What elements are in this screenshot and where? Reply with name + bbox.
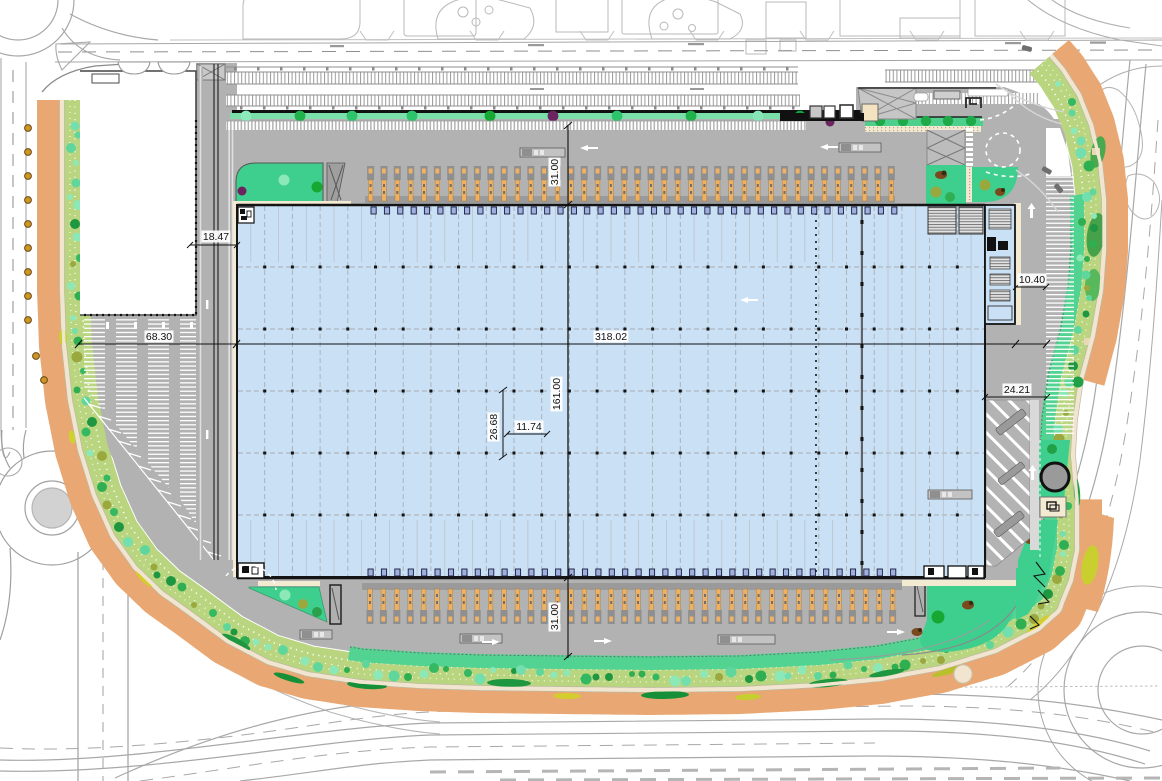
- svg-text:18.47: 18.47: [203, 231, 229, 243]
- svg-text:10.40: 10.40: [1019, 274, 1045, 286]
- svg-text:161.00: 161.00: [551, 378, 563, 410]
- svg-text:318.02: 318.02: [595, 331, 627, 343]
- svg-text:26.68: 26.68: [488, 414, 500, 440]
- svg-text:24.21: 24.21: [1004, 384, 1030, 396]
- svg-text:68.30: 68.30: [146, 331, 172, 343]
- svg-text:31.00: 31.00: [549, 159, 561, 185]
- svg-text:31.00: 31.00: [549, 604, 561, 630]
- svg-text:11.74: 11.74: [516, 421, 542, 433]
